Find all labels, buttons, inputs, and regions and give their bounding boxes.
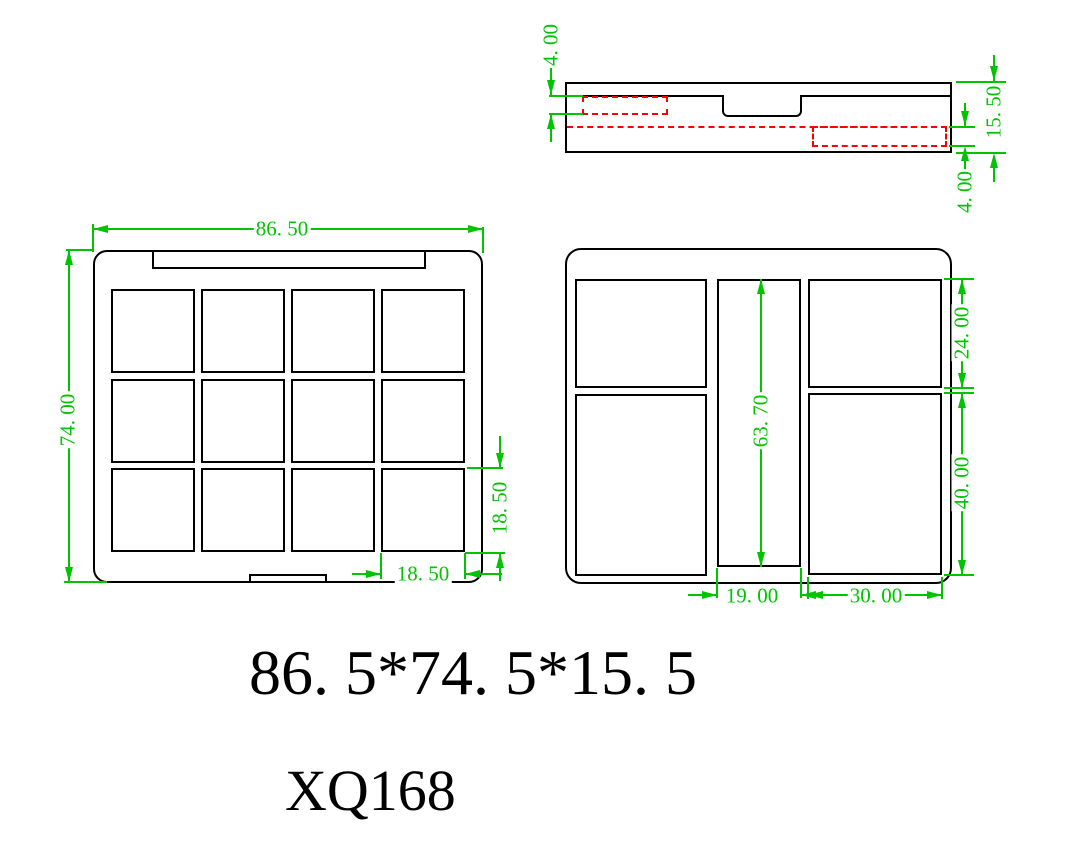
- pan-cell: [201, 379, 285, 463]
- dim-label-pan-height: 18. 50: [490, 480, 511, 537]
- arrowhead: [65, 567, 73, 582]
- section-inner-line-right: [800, 95, 950, 97]
- arrowhead: [496, 453, 504, 468]
- arrowhead: [958, 560, 966, 575]
- hidden-recess-bottom-right: [812, 126, 947, 147]
- arrowhead: [990, 153, 998, 168]
- dim-label-overall-width: 86. 50: [254, 219, 311, 240]
- arrowhead: [547, 114, 555, 129]
- cad-drawing-canvas: 4. 00 15. 50 4. 00: [0, 0, 1070, 853]
- model-code-label: XQ168: [285, 762, 456, 820]
- base-pan-top-right: [808, 279, 942, 388]
- dim-label-right-pan-width: 30. 00: [848, 586, 905, 607]
- pan-cell: [201, 289, 285, 373]
- arrowhead: [958, 279, 966, 294]
- front-hinge-strip: [152, 250, 426, 269]
- pan-cell: [381, 379, 465, 463]
- pan-cell: [111, 289, 195, 373]
- arrowhead: [468, 225, 483, 233]
- dim-label-bottom-right-pan: 40. 00: [952, 455, 973, 512]
- base-pan-bottom-left: [575, 394, 707, 576]
- dim-label-channel-length: 63. 70: [751, 393, 772, 450]
- dim-label-top-right-pan: 24. 00: [952, 305, 973, 362]
- dim-label-top-recess: 4. 00: [541, 22, 562, 68]
- pan-cell: [291, 468, 375, 552]
- arrowhead: [93, 225, 108, 233]
- arrowhead: [702, 591, 717, 599]
- extension-line: [549, 95, 583, 97]
- section-latch-notch: [722, 95, 802, 117]
- dimension-line: [993, 168, 995, 182]
- pan-cell: [291, 289, 375, 373]
- pan-cell: [291, 379, 375, 463]
- dim-label-channel-width: 19. 00: [724, 586, 781, 607]
- arrowhead: [465, 570, 480, 578]
- base-pan-bottom-right: [808, 393, 942, 575]
- pan-cell: [111, 379, 195, 463]
- arrowhead: [990, 66, 998, 81]
- pan-cell: [111, 468, 195, 552]
- dim-label-overall-height: 74. 00: [58, 392, 79, 449]
- pan-cell: [381, 289, 465, 373]
- arrowhead: [958, 393, 966, 408]
- arrowhead: [961, 146, 969, 161]
- arrowhead: [958, 373, 966, 388]
- extension-line: [956, 81, 1006, 83]
- pan-cell: [201, 468, 285, 552]
- overall-size-label: 86. 5*74. 5*15. 5: [249, 641, 697, 705]
- arrowhead: [808, 591, 823, 599]
- base-pan-top-left: [575, 279, 707, 388]
- dim-label-pan-width: 18. 50: [395, 564, 452, 585]
- arrowhead: [366, 570, 381, 578]
- extension-line: [949, 126, 975, 128]
- pan-cell: [381, 468, 465, 552]
- arrowhead: [961, 111, 969, 126]
- dim-label-bottom-recess: 4. 00: [955, 169, 976, 215]
- arrowhead: [65, 250, 73, 265]
- hidden-recess-top-left: [582, 96, 668, 115]
- arrowhead: [757, 552, 765, 567]
- front-thumb-notch: [249, 574, 327, 583]
- arrowhead: [757, 279, 765, 294]
- dim-label-total-height: 15. 50: [984, 84, 1005, 141]
- arrowhead: [496, 553, 504, 568]
- arrowhead: [547, 80, 555, 95]
- arrowhead: [927, 591, 942, 599]
